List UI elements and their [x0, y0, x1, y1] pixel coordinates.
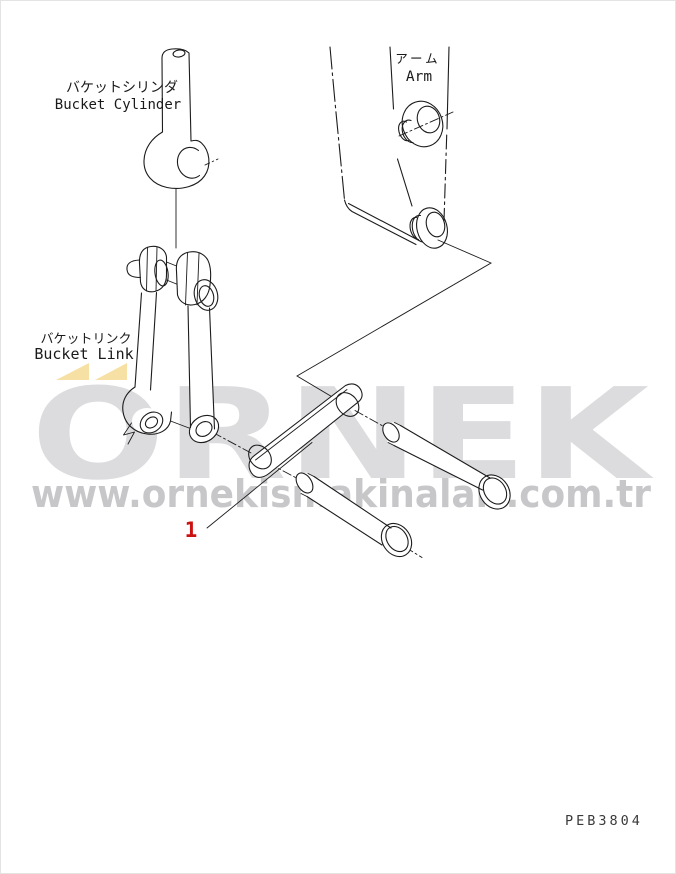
arm-label-en: Arm	[406, 69, 432, 85]
arm-label-jp: アーム	[395, 51, 440, 66]
cylinder-eye-axis-tick	[205, 159, 218, 165]
parts-diagram-canvas: ORNEK www.ornekismakinalari.com.tr	[1, 1, 676, 874]
parts-diagram-page: ORNEK www.ornekismakinalari.com.tr	[0, 0, 676, 874]
bucket-cylinder-label-en: Bucket Cylinder	[55, 97, 181, 113]
drawing-code: PEB3804	[565, 813, 643, 829]
part-number-label: 1	[185, 518, 198, 542]
bucket-link-label-en: Bucket Link	[34, 345, 133, 363]
watermark: ORNEK www.ornekismakinalari.com.tr	[31, 361, 654, 516]
bucket-cylinder-label-jp: バケットシリンダ	[66, 80, 178, 96]
